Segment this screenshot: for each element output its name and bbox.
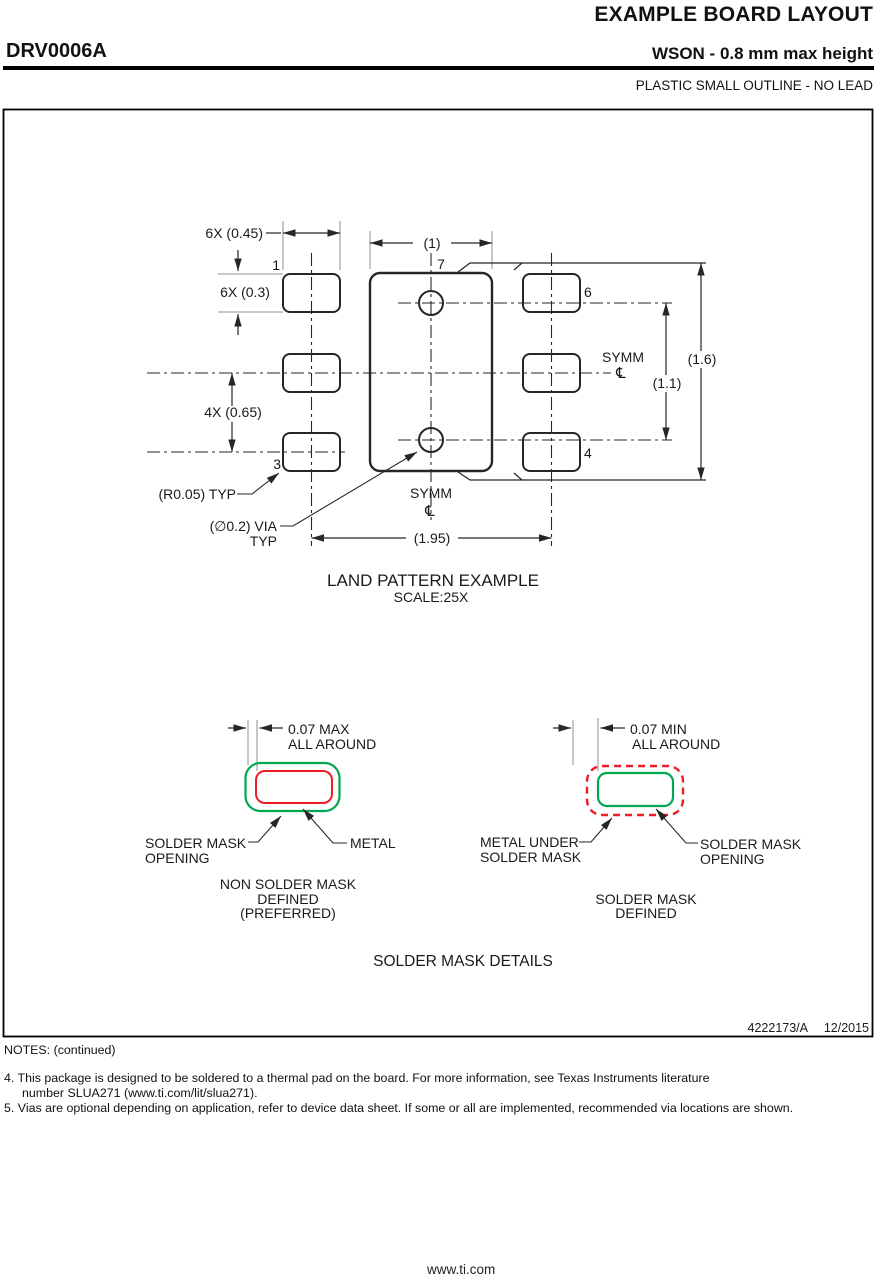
- notes-heading: NOTES: (continued): [4, 1043, 116, 1057]
- corner-radius-leader: [237, 473, 279, 494]
- pin-7-label: 7: [437, 256, 445, 272]
- package-outline: [458, 263, 706, 480]
- land-pattern-title: LAND PATTERN EXAMPLE: [327, 571, 539, 590]
- dim-pad-pitch: 4X (0.65): [204, 404, 262, 420]
- smd-metal-label2: SOLDER MASK: [480, 849, 582, 865]
- footer-url: www.ti.com: [427, 1262, 495, 1277]
- dim-via-pitch: (1.1): [653, 375, 682, 391]
- solder-mask-section-title: SOLDER MASK DETAILS: [373, 953, 553, 970]
- pin-3-label: 3: [273, 456, 281, 472]
- pin-6-label: 6: [584, 284, 592, 300]
- centerline-bottom-icon: ℄: [424, 502, 435, 520]
- smd-metal-leader: [579, 818, 612, 842]
- nsmd-caption1: NON SOLDER MASK: [220, 876, 357, 892]
- note-5: 5. Vias are optional depending on applic…: [4, 1101, 793, 1115]
- dim-outline-height: (1.6): [688, 351, 717, 367]
- leader-lines: [237, 452, 417, 526]
- symm-right-label: SYMM: [602, 349, 644, 365]
- dim-via-line2: TYP: [250, 533, 277, 549]
- nsmd-metal-label: METAL: [350, 835, 396, 851]
- dim-pad-span: (1.95): [414, 530, 451, 546]
- doc-number: 4222173/A: [748, 1021, 809, 1035]
- nsmd-dim-line1: 0.07 MAX: [288, 721, 350, 737]
- smd-opening-label1: SOLDER MASK: [700, 836, 802, 852]
- note-4-line2: number SLUA271 (www.ti.com/lit/slua271).: [22, 1086, 258, 1100]
- pin-4-label: 4: [584, 445, 592, 461]
- smd-dim-line2: ALL AROUND: [632, 736, 720, 752]
- smd-dim-line1: 0.07 MIN: [630, 721, 687, 737]
- dim-thermal-width: (1): [423, 235, 440, 251]
- dim-corner-radius: (R0.05) TYP: [158, 486, 236, 502]
- land-pattern-figure: 1 7 6 4 3 6X (0.45) 6X (0.3) 4X (0.65) (…: [147, 221, 723, 605]
- note-4-line1: 4. This package is designed to be solder…: [4, 1071, 710, 1085]
- centerline-right-icon: ℄: [615, 364, 626, 382]
- datasheet-page: { "header": { "sheet_title": "EXAMPLE BO…: [0, 0, 878, 1288]
- nsmd-opening-label1: SOLDER MASK: [145, 835, 247, 851]
- smd-caption2: DEFINED: [615, 905, 676, 921]
- nsmd-figure: 0.07 MAX ALL AROUND SOLDER MASK OPENING …: [145, 720, 396, 921]
- land-pattern-scale: SCALE:25X: [394, 589, 469, 605]
- nsmd-opening-leader: [248, 816, 281, 842]
- nsmd-opening-label2: OPENING: [145, 850, 210, 866]
- symm-bottom-label: SYMM: [410, 485, 452, 501]
- smd-metal-label1: METAL UNDER: [480, 834, 579, 850]
- smd-opening-label2: OPENING: [700, 851, 765, 867]
- smd-solder-mask-opening-shape: [598, 773, 673, 806]
- nsmd-metal-leader: [303, 809, 347, 843]
- dimension-lines: [232, 233, 701, 538]
- dim-pad-height: 6X (0.3): [220, 284, 270, 300]
- nsmd-metal-shape: [256, 771, 332, 803]
- pin-1-label: 1: [272, 257, 280, 273]
- dim-pad-width: 6X (0.45): [205, 225, 263, 241]
- nsmd-dim-line2: ALL AROUND: [288, 736, 376, 752]
- smd-figure: 0.07 MIN ALL AROUND METAL UNDER SOLDER M…: [480, 718, 802, 921]
- via-leader: [280, 452, 417, 526]
- dim-via-line1: (∅0.2) VIA: [210, 518, 278, 534]
- nsmd-caption3: (PREFERRED): [240, 905, 336, 921]
- revision-date: 12/2015: [824, 1021, 869, 1035]
